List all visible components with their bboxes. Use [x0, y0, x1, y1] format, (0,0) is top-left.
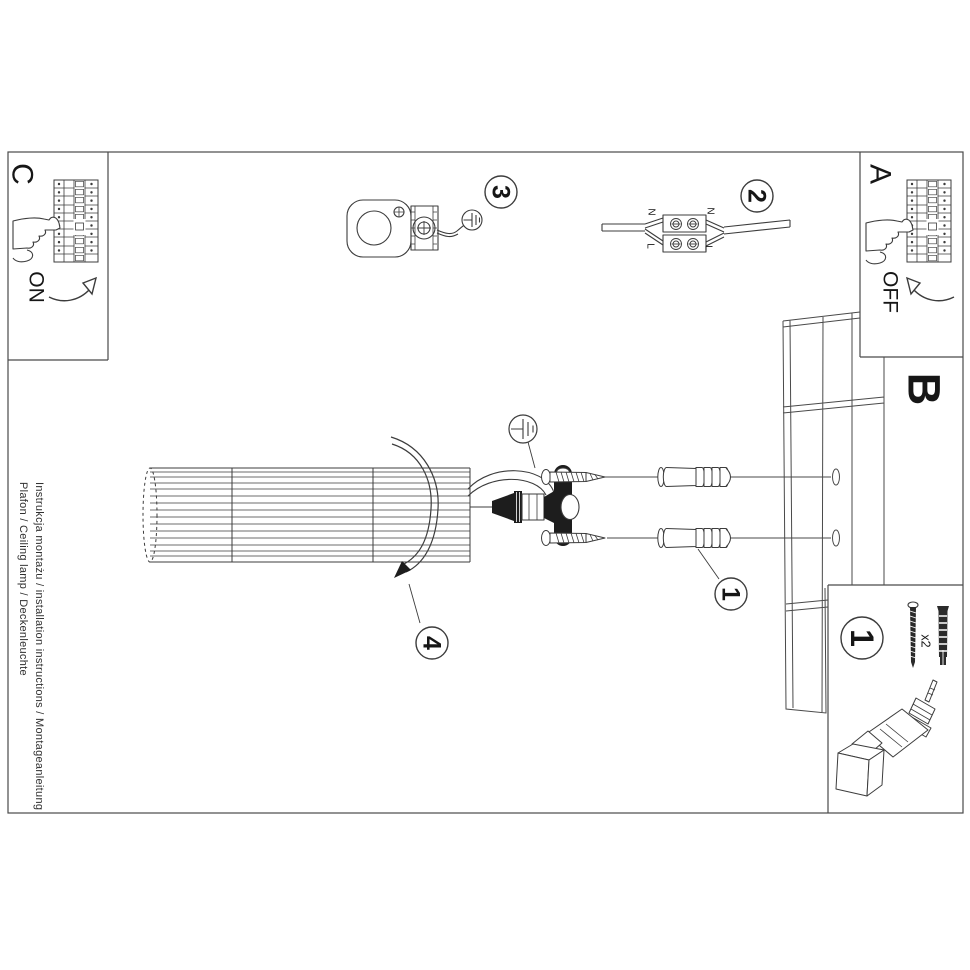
wire-label-l-right: L: [703, 245, 714, 251]
wire-split-left: [645, 218, 663, 245]
svg-text:1: 1: [716, 587, 744, 601]
step-badge-4: 4: [416, 627, 448, 659]
svg-text:3: 3: [486, 185, 514, 199]
diagram-canvas: Instrukcja montażu / installation instru…: [0, 0, 970, 970]
cylinder-outline: [150, 468, 470, 562]
section-label-b: B: [898, 373, 949, 406]
step2-wiring: N L N L 2: [602, 180, 790, 252]
svg-text:1: 1: [844, 629, 880, 647]
step4-rotate: 4: [391, 437, 448, 659]
section-label-c: C: [6, 163, 39, 185]
leader-earth: [528, 442, 535, 468]
rotate-arrow-head: [394, 561, 411, 578]
page-frame: [8, 152, 963, 813]
instruction-sheet: Instrukcja montażu / installation instru…: [0, 0, 970, 970]
wire-label-n-right: N: [705, 207, 716, 214]
pointing-hand-icon: [866, 219, 913, 264]
side-text-line2: Plafon / Ceiling lamp / Deckenleuchte: [17, 482, 29, 676]
bracket-hub: [561, 495, 579, 520]
quantity-label: x2: [919, 634, 933, 647]
breaker-panel-icon: [907, 180, 951, 262]
step1-wall-plugs: 1: [658, 468, 747, 611]
step-badge-3: 3: [485, 176, 517, 208]
off-arrow-icon: [907, 278, 954, 301]
side-text: Instrukcja montażu / installation instru…: [17, 482, 45, 810]
step-badge-2: 2: [741, 180, 773, 212]
screw-icon: [908, 602, 918, 668]
leader-step1: [698, 549, 719, 579]
wire-label-l-left: L: [645, 243, 656, 249]
section-label-a: A: [864, 164, 897, 184]
cable-gland-rings: [514, 491, 522, 523]
breaker-panel-icon: [54, 180, 98, 262]
connector-block-l: [663, 235, 706, 252]
leader-step4: [409, 584, 420, 623]
earth-ground-icon-2: [509, 415, 537, 468]
on-label: ON: [25, 271, 48, 303]
cylinder-open-end: [143, 468, 157, 562]
on-arrow-icon: [49, 278, 96, 301]
parts-badge: 1: [841, 617, 883, 659]
wall-plug-icon-top: [658, 468, 731, 487]
cable-gland-cone: [492, 493, 514, 521]
cable-left: [602, 224, 645, 231]
connector-block-n: [663, 215, 706, 232]
mounting-assembly: [468, 415, 605, 546]
wire-split-right: [706, 220, 724, 246]
page-border: [8, 152, 963, 813]
pointing-hand-icon: [13, 217, 60, 262]
cylinder-ribs: [150, 472, 470, 556]
parts-box: 1 x2: [836, 602, 949, 796]
canopy-screw-icon: [394, 207, 404, 217]
earth-ground-icon: [462, 210, 482, 230]
step-badge-1: 1: [715, 578, 747, 610]
wall-plug-icon: [937, 606, 949, 665]
cylinder-segments: [232, 468, 373, 562]
step3-canopy: 3: [347, 176, 517, 257]
wall-plug-icon-bottom: [658, 529, 731, 548]
svg-text:4: 4: [417, 636, 445, 650]
ceiling-hole-top: [833, 469, 840, 485]
svg-text:2: 2: [742, 189, 770, 203]
drill-icon: [836, 680, 937, 796]
gland-body: [522, 494, 544, 520]
side-text-line1: Instrukcja montażu / installation instru…: [33, 482, 45, 810]
cable-right: [724, 220, 790, 234]
terminal-screw-block: [411, 206, 438, 250]
section-power-on: C ON: [6, 163, 99, 303]
mounting-screw-top: [542, 470, 606, 485]
wire-label-n-left: N: [646, 208, 657, 215]
off-label: OFF: [879, 271, 902, 313]
section-power-off: A OFF: [864, 164, 955, 313]
mounting-screw-bottom: [542, 531, 606, 546]
ceiling-hole-bottom: [833, 530, 840, 546]
